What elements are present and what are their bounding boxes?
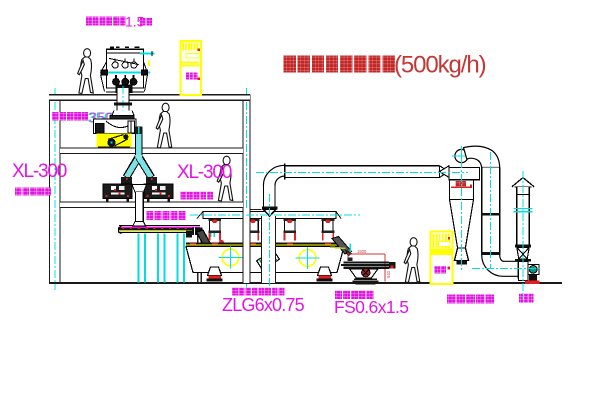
svg-text:FS0.6x1.5: FS0.6x1.5 [334, 297, 408, 317]
svg-text:1500: 1500 [357, 249, 367, 254]
svg-text:XL-300: XL-300 [12, 161, 67, 182]
svg-text:(500kg/h): (500kg/h) [394, 52, 486, 79]
svg-text:XL-300: XL-300 [177, 162, 232, 183]
svg-text:540: 540 [386, 270, 391, 278]
svg-text:ZLG6x0.75: ZLG6x0.75 [222, 295, 305, 315]
